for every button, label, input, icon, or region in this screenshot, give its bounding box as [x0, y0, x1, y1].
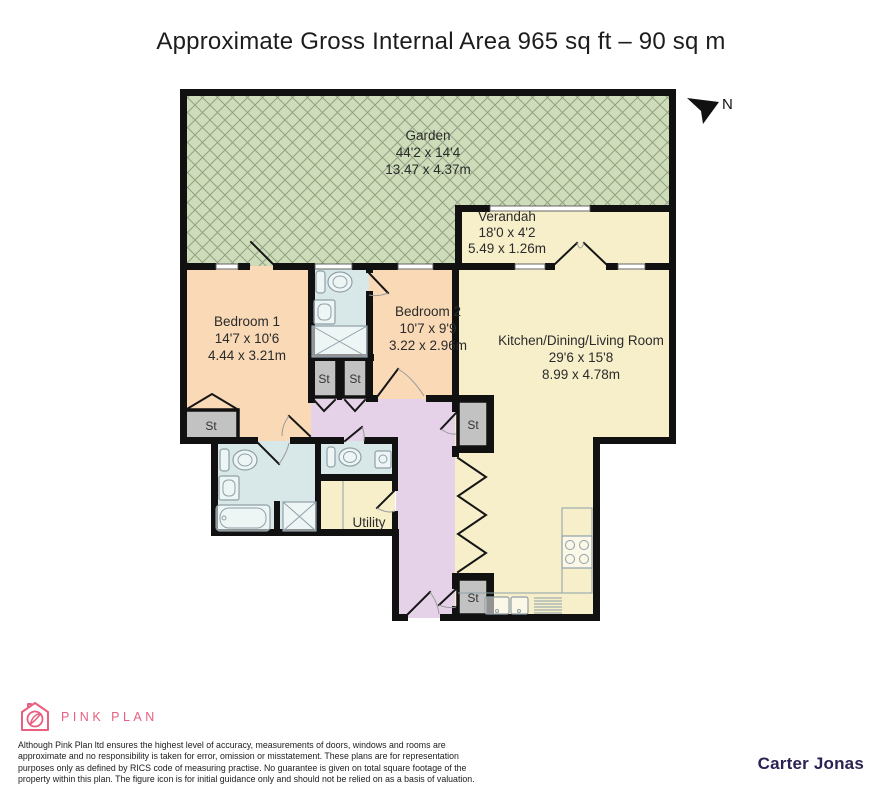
- storage-label: St: [349, 372, 361, 386]
- pink-plan-house-icon: [20, 701, 50, 733]
- bathroom-toilet-icon: [220, 449, 257, 471]
- utility-name: Utility: [353, 515, 386, 530]
- window: [216, 264, 238, 269]
- window: [315, 264, 352, 269]
- bedroom1-size-imperial: 14'7 x 10'6: [215, 331, 279, 346]
- hob-icon: [562, 536, 592, 568]
- window: [398, 264, 433, 269]
- disclaimer-line: approximate and no responsibility is tak…: [18, 751, 558, 762]
- verandah-size-imperial: 18'0 x 4'2: [479, 225, 536, 240]
- kitchen-name: Kitchen/Dining/Living Room: [498, 333, 664, 348]
- bedroom2-name: Bedroom 2: [395, 304, 461, 319]
- north-arrow: N: [687, 96, 733, 124]
- bedroom2-size-imperial: 10'7 x 9'9: [400, 321, 457, 336]
- bedroom2-size-metric: 3.22 x 2.96m: [389, 338, 467, 353]
- garden-size-imperial: 44'2 x 14'4: [396, 145, 461, 160]
- storage-label: St: [318, 372, 330, 386]
- floorplan-drawing: N Garden 44'2 x 14'4 13.47 x 4.37m Veran…: [0, 0, 882, 680]
- disclaimer-text: Although Pink Plan ltd ensures the highe…: [18, 740, 558, 786]
- kitchen-size-metric: 8.99 x 4.78m: [542, 367, 620, 382]
- storage-label: St: [467, 591, 479, 605]
- verandah-size-metric: 5.49 x 1.26m: [468, 241, 546, 256]
- bathtub-icon: [216, 505, 270, 531]
- ensuite-shower-icon: [312, 326, 367, 357]
- bathroom-shower-icon: [283, 502, 316, 531]
- bathroom-basin-icon: [219, 476, 239, 500]
- bedroom1-size-metric: 4.44 x 3.21m: [208, 348, 286, 363]
- ensuite-basin-icon: [314, 300, 335, 324]
- pink-plan-brand: PINK PLAN: [20, 701, 158, 733]
- window: [515, 264, 545, 269]
- floorplan-page: Approximate Gross Internal Area 965 sq f…: [0, 0, 882, 800]
- agent-logo-carter-jonas: Carter Jonas: [758, 754, 864, 774]
- storage-label: St: [205, 419, 217, 433]
- bedroom1-name: Bedroom 1: [214, 314, 280, 329]
- brand-name: PINK PLAN: [61, 710, 158, 724]
- storage-label: St: [467, 418, 479, 432]
- sink-icon: [485, 597, 528, 614]
- wc-basin-icon: [375, 451, 391, 468]
- kitchen-size-imperial: 29'6 x 15'8: [549, 350, 613, 365]
- window: [618, 264, 645, 269]
- disclaimer-line: purposes only as defined by RICS code of…: [18, 763, 558, 774]
- north-arrow-icon: [687, 98, 719, 124]
- garden-name: Garden: [405, 128, 450, 143]
- garden-size-metric: 13.47 x 4.37m: [385, 162, 471, 177]
- wc-toilet-icon: [327, 447, 361, 467]
- north-letter: N: [722, 96, 733, 113]
- disclaimer-line: property within this plan. The figure ic…: [18, 774, 558, 785]
- disclaimer-line: Although Pink Plan ltd ensures the highe…: [18, 740, 558, 751]
- verandah-name: Verandah: [478, 209, 536, 224]
- ensuite-toilet-icon: [316, 271, 352, 293]
